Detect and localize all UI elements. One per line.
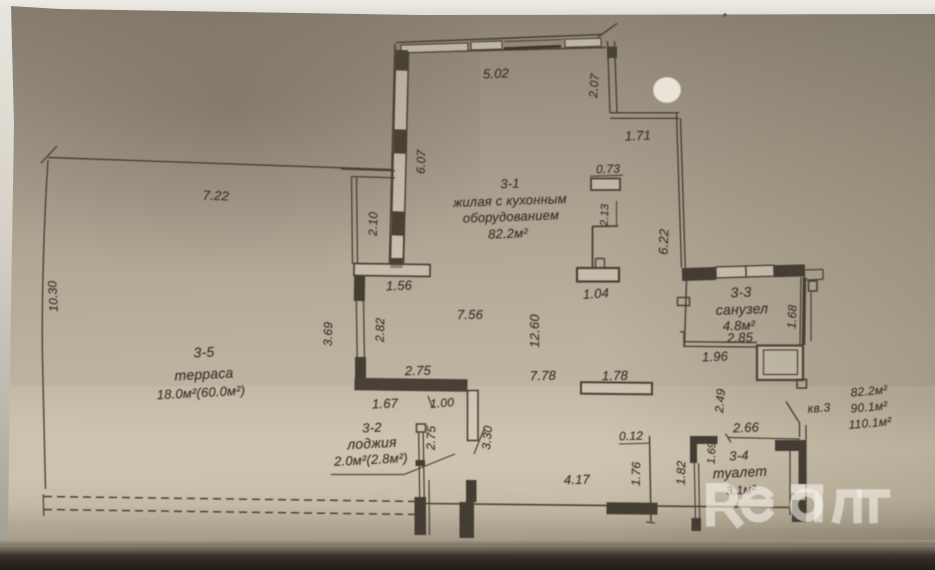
svg-text:4.17: 4.17 <box>564 472 591 487</box>
svg-text:1.78: 1.78 <box>602 368 629 383</box>
svg-text:1.76: 1.76 <box>629 461 644 486</box>
svg-text:2.75: 2.75 <box>424 425 439 451</box>
svg-text:3-1: 3-1 <box>500 176 520 192</box>
svg-text:3-3: 3-3 <box>730 284 751 301</box>
svg-text:1.56: 1.56 <box>386 278 413 294</box>
svg-text:10.30: 10.30 <box>45 280 61 312</box>
svg-text:7.56: 7.56 <box>457 307 484 322</box>
svg-text:кв.3: кв.3 <box>807 400 831 416</box>
svg-text:2.75: 2.75 <box>404 363 432 378</box>
svg-text:лоджия: лоджия <box>346 434 398 453</box>
svg-text:1.71: 1.71 <box>625 127 652 143</box>
svg-text:12.60: 12.60 <box>527 314 542 348</box>
svg-text:7.22: 7.22 <box>203 188 230 204</box>
svg-text:3.30: 3.30 <box>479 425 495 450</box>
svg-text:2.07: 2.07 <box>586 72 602 99</box>
svg-text:2.0м²(2.8м²): 2.0м²(2.8м²) <box>333 450 408 469</box>
svg-text:0.12: 0.12 <box>619 429 644 444</box>
svg-text:1.67: 1.67 <box>372 396 399 412</box>
svg-text:90.1м²: 90.1м² <box>850 398 889 415</box>
svg-text:5.02: 5.02 <box>483 66 510 82</box>
svg-text:3.69: 3.69 <box>321 322 335 347</box>
svg-text:1.82: 1.82 <box>674 460 689 485</box>
svg-text:82.2м²: 82.2м² <box>488 225 529 241</box>
svg-text:0.73: 0.73 <box>596 162 621 177</box>
svg-text:1.69: 1.69 <box>706 442 719 465</box>
svg-text:2.10: 2.10 <box>366 212 380 238</box>
svg-text:7.78: 7.78 <box>530 368 557 383</box>
svg-text:3-5: 3-5 <box>193 343 215 360</box>
svg-text:82.2м²: 82.2м² <box>850 382 889 399</box>
svg-text:1.00: 1.00 <box>429 395 454 411</box>
svg-text:2.13: 2.13 <box>599 203 612 227</box>
svg-text:2.66: 2.66 <box>732 420 760 436</box>
svg-text:туалет: туалет <box>712 463 767 482</box>
svg-text:оборудованием: оборудованием <box>463 207 560 225</box>
svg-text:1.04: 1.04 <box>582 285 609 302</box>
svg-text:6.22: 6.22 <box>656 228 672 255</box>
svg-text:110.1м²: 110.1м² <box>848 414 893 432</box>
svg-text:1.96: 1.96 <box>702 349 729 365</box>
svg-text:2.82: 2.82 <box>373 318 387 344</box>
svg-text:6.07: 6.07 <box>414 148 429 174</box>
svg-text:18.0м²(60.0м²): 18.0м²(60.0м²) <box>156 383 245 403</box>
svg-text:2.85: 2.85 <box>726 330 754 346</box>
svg-text:санузел: санузел <box>715 300 768 318</box>
svg-text:1.68: 1.68 <box>784 304 799 329</box>
svg-text:2.49: 2.49 <box>712 388 728 414</box>
svg-text:терраса: терраса <box>174 364 234 383</box>
svg-text:3-4: 3-4 <box>729 448 749 464</box>
svg-text:3-2: 3-2 <box>362 419 383 435</box>
